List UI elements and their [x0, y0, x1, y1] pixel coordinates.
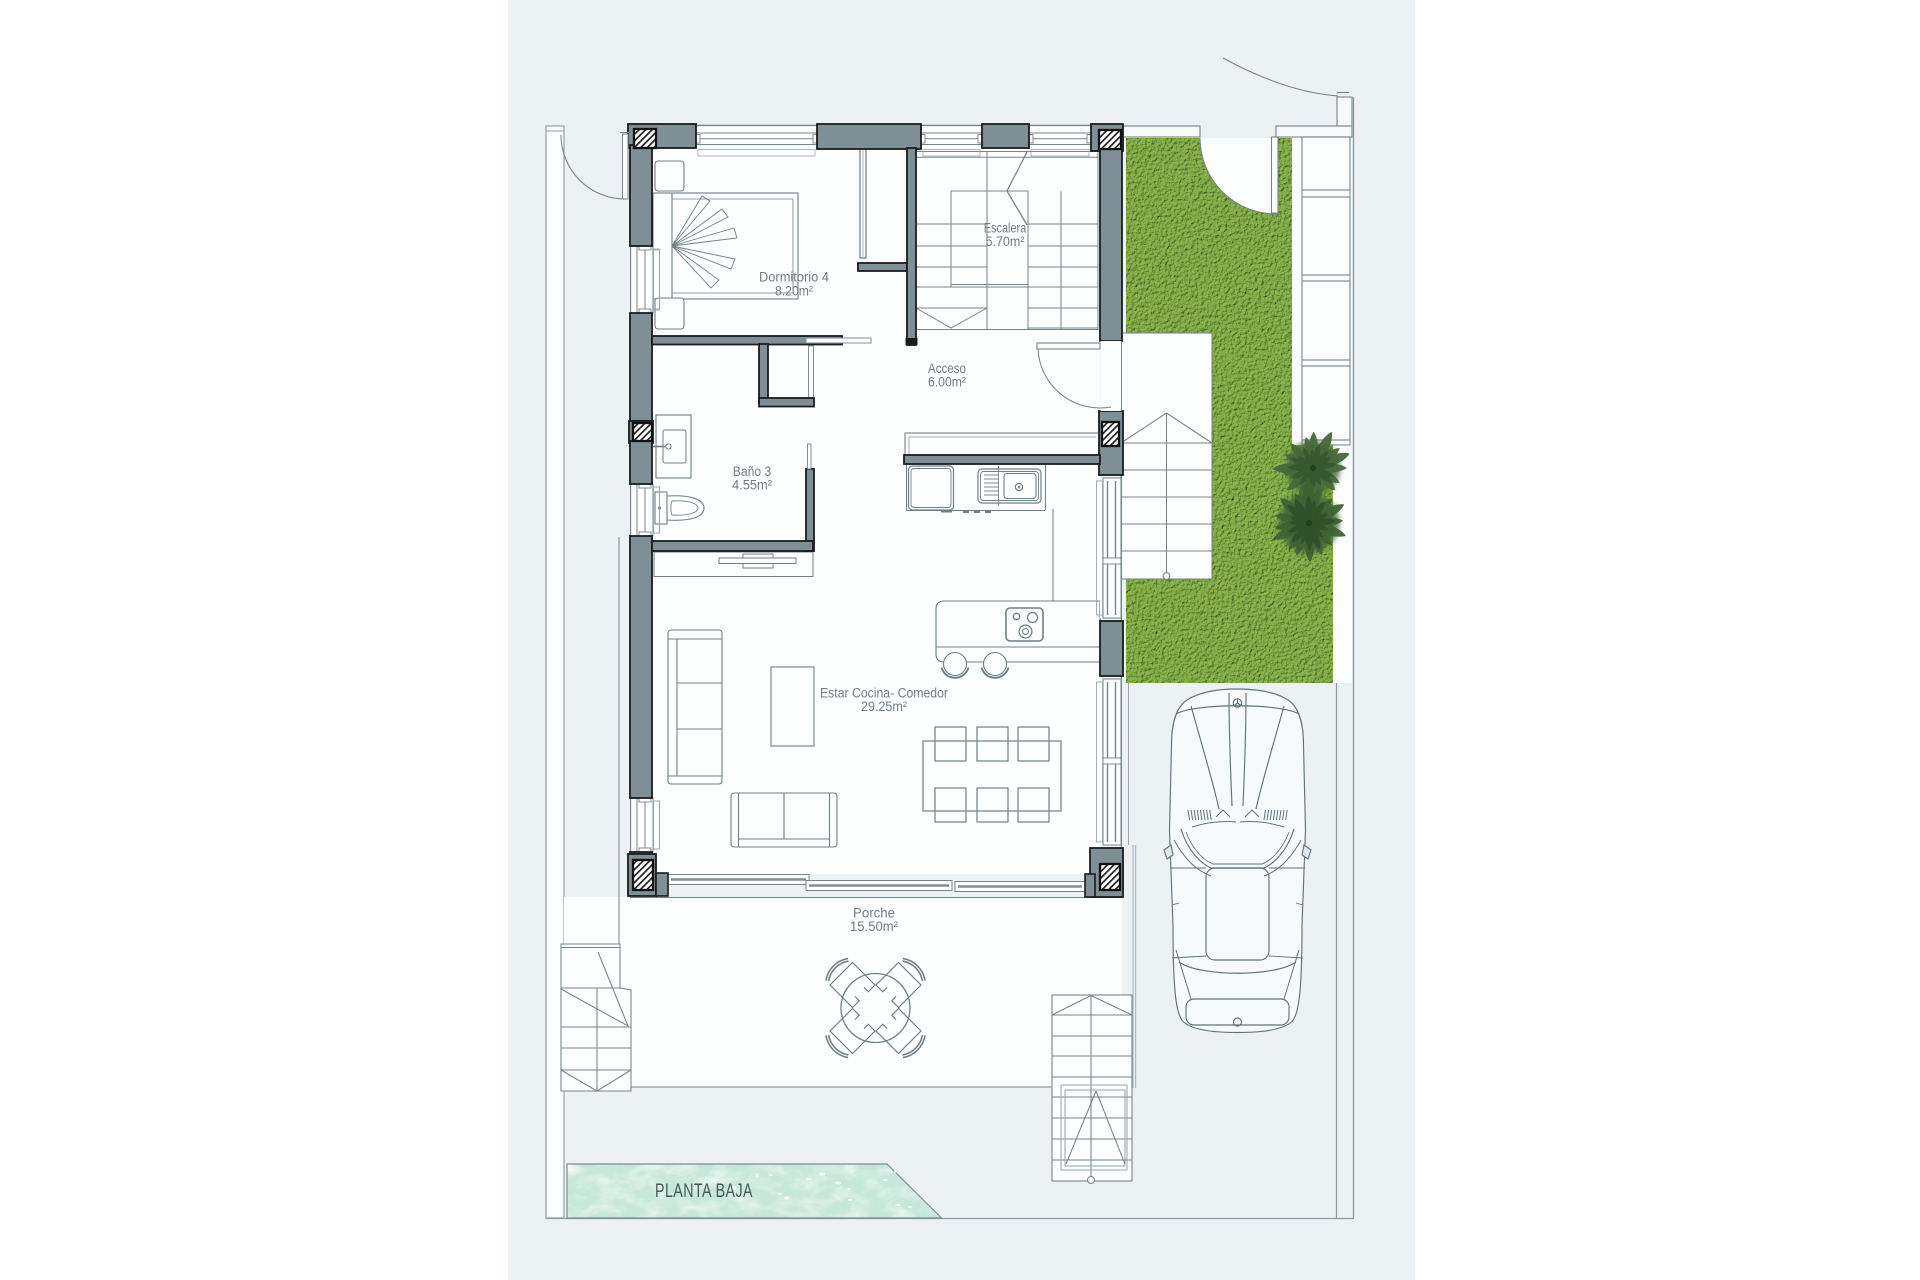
svg-text:29.25m²: 29.25m² — [861, 699, 908, 714]
svg-text:4.55m²: 4.55m² — [732, 478, 773, 493]
svg-text:6.00m²: 6.00m² — [928, 375, 966, 390]
svg-text:5.70m²: 5.70m² — [986, 234, 1025, 249]
svg-text:PLANTA BAJA: PLANTA BAJA — [655, 1181, 753, 1202]
svg-text:Dormitorio 4: Dormitorio 4 — [759, 270, 830, 285]
svg-text:8.20m²: 8.20m² — [775, 284, 813, 299]
svg-text:15.50m²: 15.50m² — [850, 919, 899, 934]
